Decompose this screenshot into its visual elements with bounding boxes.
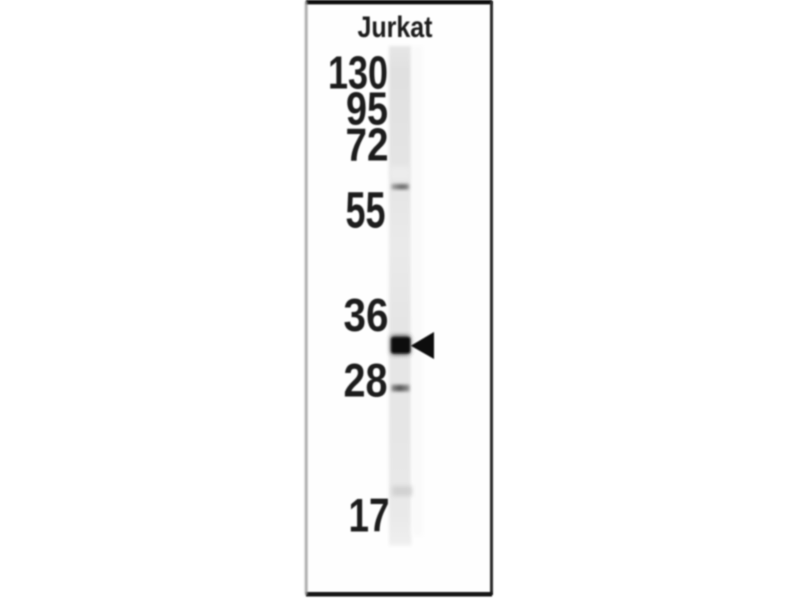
svg-text:36: 36 [344, 289, 389, 341]
svg-text:17: 17 [349, 490, 390, 543]
svg-text:72: 72 [346, 119, 389, 171]
svg-text:Jurkat: Jurkat [358, 11, 433, 44]
svg-text:55: 55 [346, 182, 386, 239]
svg-text:28: 28 [344, 354, 388, 407]
